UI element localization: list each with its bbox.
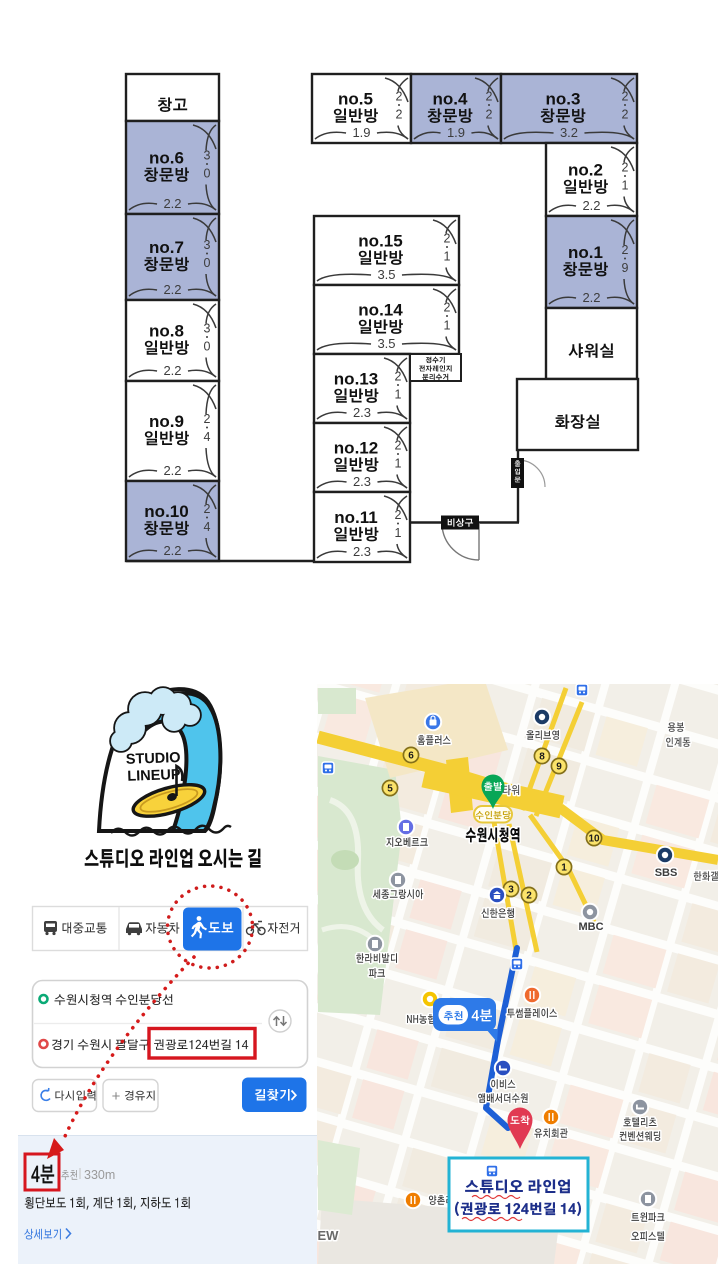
svg-text:STUDIO: STUDIO — [126, 750, 181, 768]
svg-text:8: 8 — [539, 752, 545, 763]
svg-text:330m: 330m — [84, 1168, 115, 1182]
svg-text:1: 1 — [561, 863, 567, 874]
svg-text:3: 3 — [508, 885, 514, 896]
svg-text:2: 2 — [526, 891, 532, 902]
svg-text:10: 10 — [588, 834, 600, 845]
svg-text:5: 5 — [387, 784, 393, 795]
svg-text:SBS: SBS — [655, 867, 678, 879]
svg-text:9: 9 — [556, 762, 562, 773]
svg-text:LINEUP: LINEUP — [127, 767, 181, 785]
svg-text:EW: EW — [318, 1228, 340, 1243]
svg-text:+: + — [112, 1088, 121, 1105]
svg-text:6: 6 — [408, 751, 414, 762]
svg-text:MBC: MBC — [578, 921, 603, 933]
